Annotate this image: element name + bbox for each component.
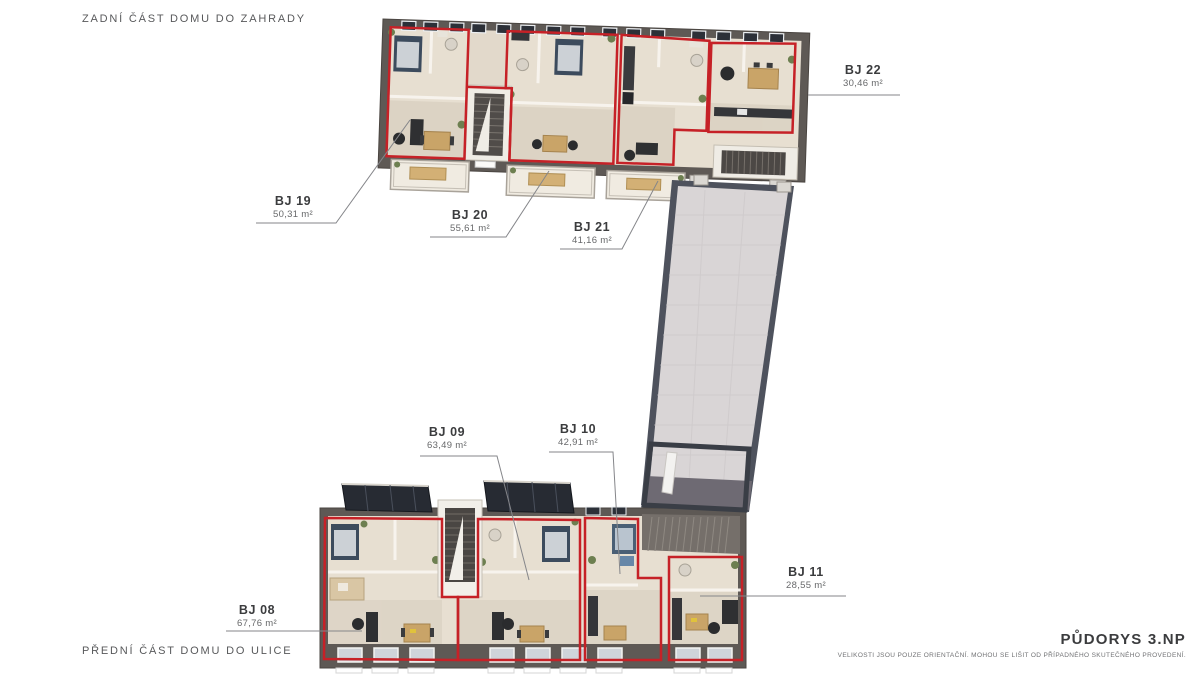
front-entrance-stairs [642, 514, 740, 554]
unit-area: 67,76 m² [237, 618, 277, 629]
unit-area: 55,61 m² [450, 223, 490, 234]
back-building [377, 19, 809, 205]
floor-plan-page: ZADNÍ ČÁST DOMU DO ZAHRADY PŘEDNÍ ČÁST D… [0, 0, 1200, 675]
back-section-label: ZADNÍ ČÁST DOMU DO ZAHRADY [82, 13, 306, 25]
unit-area: 41,16 m² [572, 235, 612, 246]
back-stairwell-right [713, 145, 798, 180]
unit-area: 28,55 m² [786, 580, 826, 591]
unit-label-bj20: BJ 20 55,61 m² [450, 209, 490, 234]
unit-label-bj11: BJ 11 28,55 m² [786, 566, 826, 591]
unit-area: 63,49 m² [427, 440, 467, 451]
unit-id: BJ 22 [843, 64, 883, 77]
plan-disclaimer: VELIKOSTI JSOU POUZE ORIENTAČNÍ. MOHOU S… [838, 652, 1186, 659]
unit-label-bj08: BJ 08 67,76 m² [237, 604, 277, 629]
connecting-corridor [641, 180, 794, 512]
unit-id: BJ 10 [558, 423, 598, 436]
unit-label-bj09: BJ 09 63,49 m² [427, 426, 467, 451]
unit-label-bj19: BJ 19 50,31 m² [273, 195, 313, 220]
unit-area: 30,46 m² [843, 78, 883, 89]
unit-label-bj10: BJ 10 42,91 m² [558, 423, 598, 448]
back-stairwell-left [465, 85, 511, 161]
unit-id: BJ 21 [572, 221, 612, 234]
unit-id: BJ 09 [427, 426, 467, 439]
floor-plan-graphic [0, 0, 1200, 675]
unit-area: 42,91 m² [558, 437, 598, 448]
unit-id: BJ 19 [273, 195, 313, 208]
unit-id: BJ 11 [786, 566, 826, 579]
unit-id: BJ 20 [450, 209, 490, 222]
unit-label-bj22: BJ 22 30,46 m² [843, 64, 883, 89]
unit-label-bj21: BJ 21 41,16 m² [572, 221, 612, 246]
unit-id: BJ 08 [237, 604, 277, 617]
front-stairwell-center [438, 500, 482, 597]
front-building [320, 481, 746, 673]
title-block: PŮDORYS 3.NP VELIKOSTI JSOU POUZE ORIENT… [838, 631, 1186, 659]
front-section-label: PŘEDNÍ ČÁST DOMU DO ULICE [82, 645, 292, 657]
plan-title: PŮDORYS 3.NP [838, 631, 1186, 649]
unit-area: 50,31 m² [273, 209, 313, 220]
